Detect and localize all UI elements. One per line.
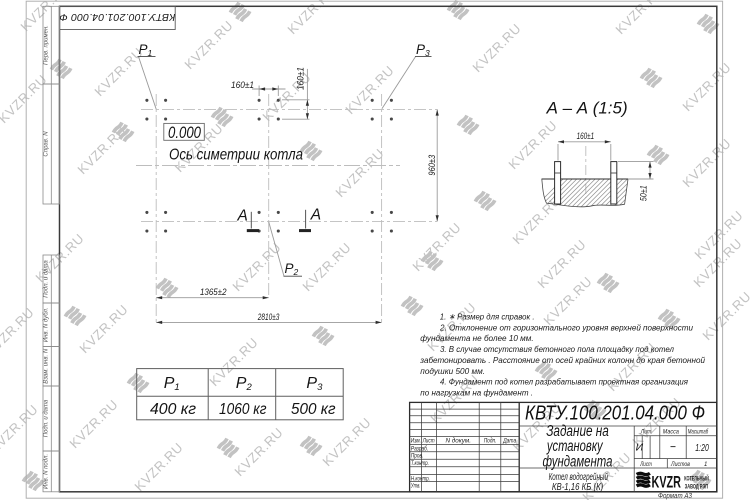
svg-text:KVZR.RU: KVZR.RU <box>0 305 37 360</box>
svg-text:KVZR.RU: KVZR.RU <box>680 60 735 115</box>
svg-text:подушки 500 мм.: подушки 500 мм. <box>420 366 485 376</box>
svg-text:4. Фундамент под котел разраба: 4. Фундамент под котел разрабатывает про… <box>440 377 688 387</box>
svg-text:KVZR.RU: KVZR.RU <box>320 415 375 470</box>
svg-text:Инв. N дубл.: Инв. N дубл. <box>44 307 50 342</box>
svg-text:KVZR.RU: KVZR.RU <box>470 21 525 76</box>
svg-text:Подп. и дата: Подп. и дата <box>44 260 50 298</box>
svg-text:КВ-1,16 КБ (К): КВ-1,16 КБ (К) <box>552 482 603 493</box>
svg-text:Масса: Масса <box>663 430 680 436</box>
svg-text:Т.контр.: Т.контр. <box>411 461 429 467</box>
svg-text:KVZR.RU: KVZR.RU <box>132 440 187 495</box>
svg-text:500 кг: 500 кг <box>291 401 336 418</box>
svg-text:Лист: Лист <box>422 439 435 445</box>
svg-text:P2: P2 <box>236 375 253 393</box>
svg-text:Перв. примен.: Перв. примен. <box>44 25 50 65</box>
svg-text:1365±2: 1365±2 <box>200 287 227 298</box>
svg-text:160±1: 160±1 <box>231 80 254 91</box>
svg-text:KVZR.RU: KVZR.RU <box>0 72 50 127</box>
svg-text:P1: P1 <box>139 42 153 58</box>
svg-text:Формат А3: Формат А3 <box>658 493 692 500</box>
svg-text:И: И <box>636 442 644 454</box>
svg-text:фундамента: фундамента <box>543 453 613 470</box>
svg-text:2810±3: 2810±3 <box>257 312 280 323</box>
svg-text:Взам. инв. N: Взам. инв. N <box>44 348 50 384</box>
svg-text:P3: P3 <box>416 42 430 58</box>
svg-text:Разраб.: Разраб. <box>411 446 428 452</box>
svg-text:1. ∗ Размер для справок .: 1. ∗ Размер для справок . <box>440 312 535 322</box>
svg-text:P3: P3 <box>306 375 323 393</box>
svg-text:КОТЕЛЬНЫЙ: КОТЕЛЬНЫЙ <box>684 473 709 482</box>
svg-text:KVZR.RU: KVZR.RU <box>77 302 132 357</box>
svg-text:3. В случае отсутствия бетонно: 3. В случае отсутствия бетонного пола пл… <box>440 344 674 354</box>
svg-text:Пров.: Пров. <box>411 454 423 460</box>
svg-text:KVZR.RU: KVZR.RU <box>67 397 122 452</box>
svg-text:A: A <box>310 207 321 224</box>
svg-text:1060 кг: 1060 кг <box>219 401 267 418</box>
svg-text:N докум.: N докум. <box>446 439 472 445</box>
svg-text:KVZR.RU: KVZR.RU <box>300 240 355 295</box>
svg-text:KVZR.RU: KVZR.RU <box>343 63 398 118</box>
svg-text:КВТУ.100.201.04.000 Ф: КВТУ.100.201.04.000 Ф <box>59 11 175 23</box>
svg-text:160±1: 160±1 <box>296 67 307 90</box>
svg-text:Лит.: Лит. <box>640 430 652 436</box>
svg-text:1: 1 <box>704 462 707 468</box>
svg-text:забетонировать . Расстояние от: забетонировать . Расстояние от осей край… <box>419 355 705 365</box>
svg-text:Справ. N: Справ. N <box>44 131 50 157</box>
svg-text:Инв. N подл.: Инв. N подл. <box>44 454 50 489</box>
svg-text:2. Отклонение от горизонтально: 2. Отклонение от горизонтального уровня … <box>439 322 693 332</box>
svg-text:Н.контр.: Н.контр. <box>411 476 430 482</box>
svg-text:KVZR.RU: KVZR.RU <box>333 146 388 201</box>
svg-text:P1: P1 <box>164 375 180 393</box>
svg-text:Масштаб: Масштаб <box>688 430 709 436</box>
svg-text:Подп. и дата: Подп. и дата <box>44 399 50 437</box>
svg-text:KVZR.RU: KVZR.RU <box>700 289 750 344</box>
svg-text:KVZR.RU: KVZR.RU <box>207 335 262 390</box>
svg-text:P2: P2 <box>285 261 299 277</box>
svg-text:400 кг: 400 кг <box>150 401 196 418</box>
svg-text:1:20: 1:20 <box>695 442 709 454</box>
svg-text:KVZR.RU: KVZR.RU <box>182 18 237 73</box>
svg-text:Подп.: Подп. <box>484 439 497 445</box>
svg-text:Утв.: Утв. <box>410 484 420 490</box>
svg-text:Ось симетрии котла: Ось симетрии котла <box>169 147 303 164</box>
svg-text:50±1: 50±1 <box>639 185 650 201</box>
svg-text:ЗАВОД РЭП: ЗАВОД РЭП <box>685 484 709 491</box>
svg-text:Дата: Дата <box>502 439 516 445</box>
svg-text:Листов: Листов <box>670 462 690 468</box>
svg-text:0.000: 0.000 <box>168 123 201 142</box>
svg-text:A: A <box>237 208 248 225</box>
svg-text:Лист: Лист <box>639 462 651 468</box>
svg-text:Изм.: Изм. <box>411 439 421 445</box>
svg-text:KVZR.RU: KVZR.RU <box>506 118 561 173</box>
svg-text:KVZR.RU: KVZR.RU <box>232 425 287 480</box>
svg-text:по нагрузкам на фундамент .: по нагрузкам на фундамент . <box>420 387 533 397</box>
svg-text:960±3: 960±3 <box>427 154 438 175</box>
svg-text:фундамента не более 10 мм.: фундамента не более 10 мм. <box>420 333 533 343</box>
svg-text:KVZR.RU: KVZR.RU <box>680 136 735 191</box>
svg-text:160±1: 160±1 <box>577 131 595 142</box>
svg-text:А – А (1:5): А – А (1:5) <box>546 99 628 117</box>
svg-text:KVZR: KVZR <box>652 473 682 491</box>
svg-text:KVZR.RU: KVZR.RU <box>0 402 41 457</box>
svg-text:КВТУ.100.201.04.000 Ф: КВТУ.100.201.04.000 Ф <box>525 402 705 424</box>
